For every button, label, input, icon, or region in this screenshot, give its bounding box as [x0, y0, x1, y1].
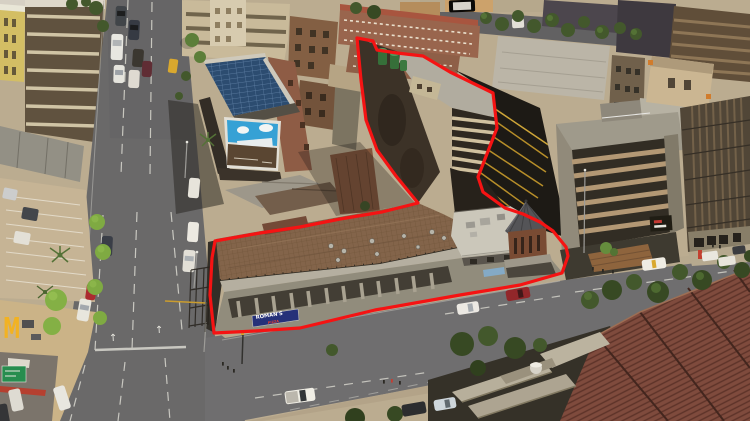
aerial-photo-canvas: ↑ ↑ M	[0, 0, 750, 421]
aerial-photo: ↑ ↑ M	[0, 0, 750, 421]
light-wash	[0, 0, 750, 421]
